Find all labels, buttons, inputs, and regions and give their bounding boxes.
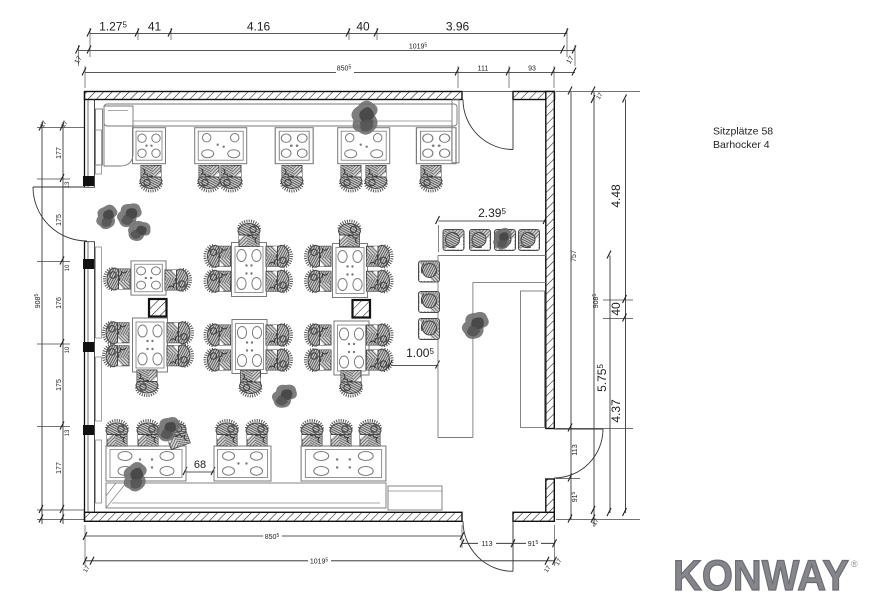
- svg-text:13: 13: [65, 181, 71, 188]
- svg-text:10195: 10195: [409, 43, 428, 51]
- svg-text:Sitzplätze 58: Sitzplätze 58: [713, 126, 773, 138]
- svg-text:113: 113: [481, 541, 492, 548]
- svg-text:3.96: 3.96: [446, 20, 470, 34]
- svg-text:10: 10: [65, 264, 71, 271]
- svg-text:17: 17: [596, 92, 605, 101]
- svg-text:93: 93: [528, 66, 536, 73]
- svg-text:17: 17: [83, 565, 92, 574]
- svg-text:®: ®: [851, 559, 858, 569]
- svg-text:68: 68: [194, 459, 206, 471]
- svg-text:113: 113: [572, 444, 579, 455]
- svg-text:KONWAY: KONWAY: [673, 552, 849, 600]
- svg-text:8505: 8505: [265, 533, 280, 541]
- svg-text:175: 175: [56, 379, 63, 391]
- svg-text:4.48: 4.48: [609, 184, 623, 208]
- svg-text:757: 757: [571, 250, 578, 262]
- svg-text:4.37: 4.37: [609, 399, 623, 423]
- svg-text:4.16: 4.16: [247, 20, 271, 34]
- svg-text:9085: 9085: [34, 294, 42, 309]
- svg-text:177: 177: [56, 147, 63, 159]
- svg-text:Barhocker 4: Barhocker 4: [713, 139, 770, 151]
- svg-text:915: 915: [571, 491, 579, 502]
- svg-text:40: 40: [609, 302, 623, 316]
- svg-text:1.005: 1.005: [406, 346, 434, 360]
- svg-text:17: 17: [544, 565, 553, 574]
- svg-text:17: 17: [74, 55, 84, 65]
- svg-text:13: 13: [65, 429, 71, 436]
- svg-text:176: 176: [56, 297, 63, 309]
- svg-text:177: 177: [56, 462, 63, 474]
- svg-text:175: 175: [56, 214, 63, 226]
- svg-text:111: 111: [478, 66, 489, 73]
- svg-text:2.395: 2.395: [478, 206, 506, 220]
- svg-text:10195: 10195: [310, 558, 329, 566]
- svg-text:1.275: 1.275: [99, 20, 127, 34]
- svg-text:9085: 9085: [592, 294, 600, 309]
- svg-text:40: 40: [356, 20, 370, 34]
- svg-text:17: 17: [555, 558, 564, 567]
- svg-text:41: 41: [148, 20, 162, 34]
- svg-text:10: 10: [65, 346, 71, 353]
- svg-text:5.755: 5.755: [595, 364, 609, 392]
